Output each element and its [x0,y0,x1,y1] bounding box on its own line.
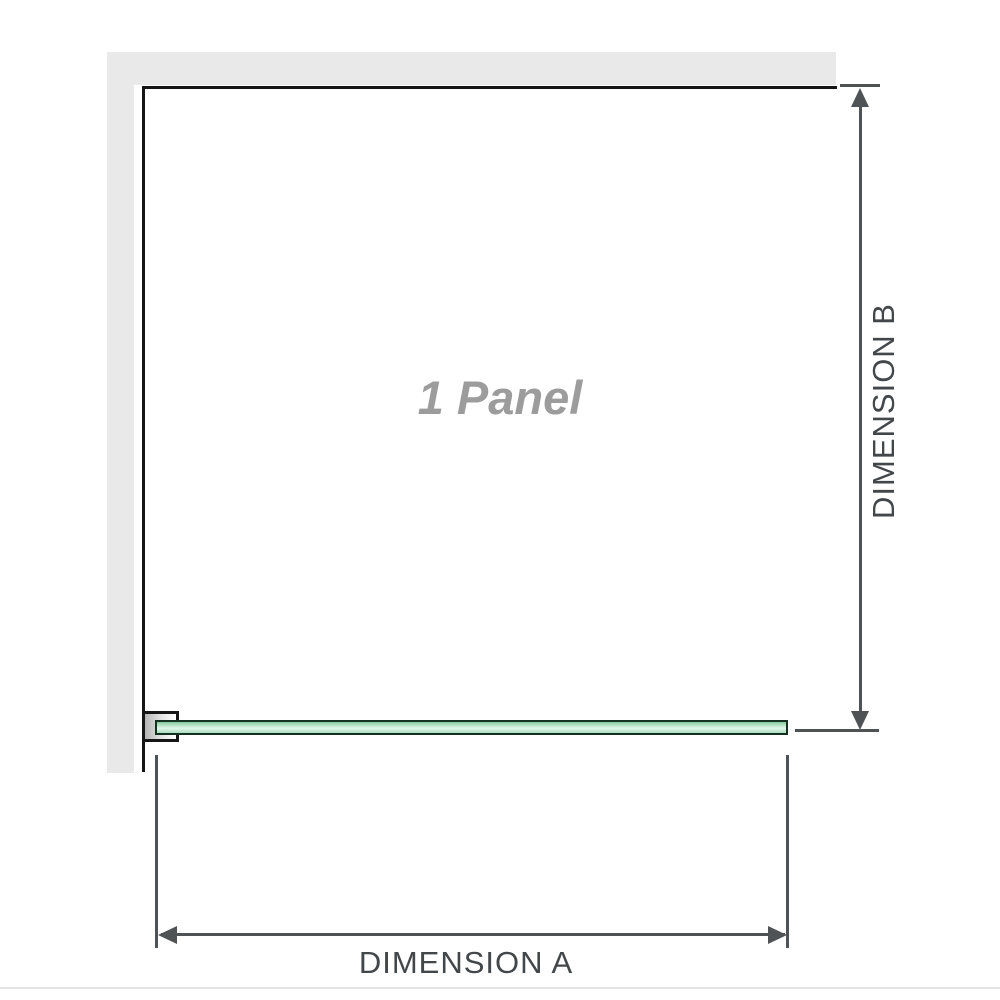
dimension-a-right-extension-line [786,755,789,948]
dimension-b-top-tick [840,84,880,87]
dimension-b-label: DIMENSION B [866,250,902,572]
wall-top-bar [107,52,836,85]
arrow-down-icon [851,711,869,730]
dimension-a-left-extension-line [155,755,158,948]
page-divider [0,987,1000,989]
panel-count-label: 1 Panel [340,372,660,424]
wall-left-bar [107,52,134,773]
arrow-left-icon [158,926,177,944]
panel-outline [142,86,837,772]
dimension-b-line [859,95,862,721]
arrow-up-icon [851,88,869,107]
dimension-a-line [161,933,785,936]
dimension-a-label: DIMENSION A [316,945,616,981]
glass-panel [155,720,788,735]
panel-dimension-diagram: 1 Panel DIMENSION B DIMENSION A [0,0,1000,1000]
arrow-right-icon [768,926,787,944]
